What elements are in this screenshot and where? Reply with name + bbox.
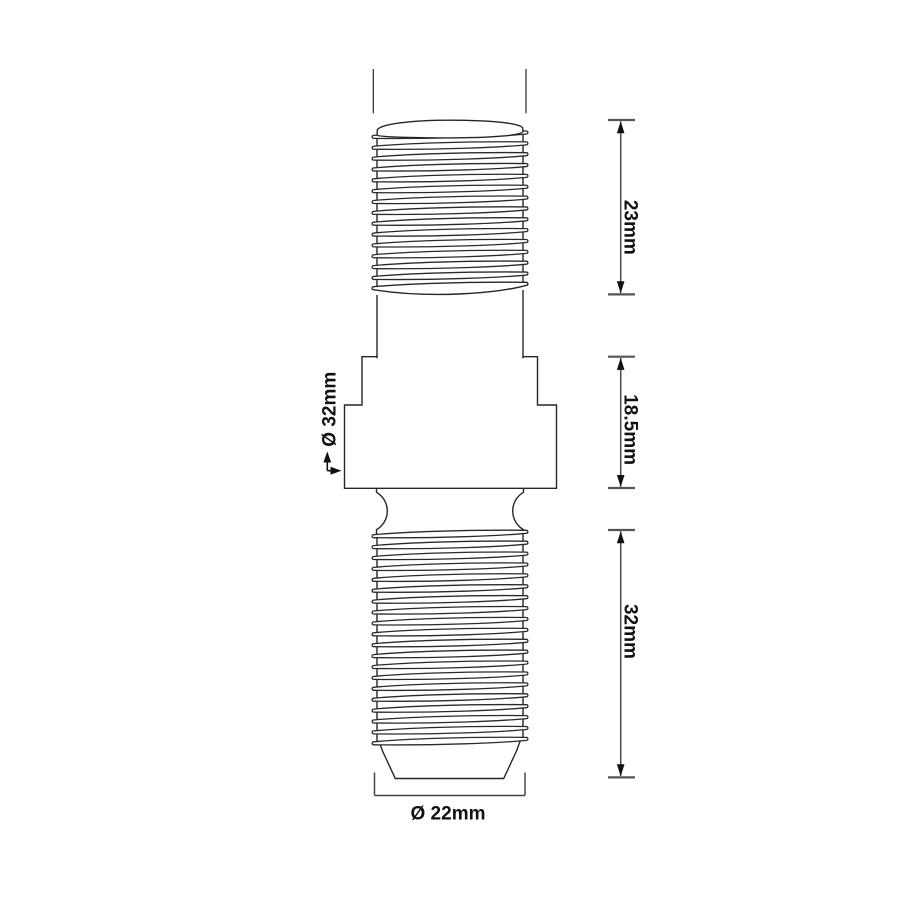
svg-text:Ø 32mm: Ø 32mm <box>319 372 340 447</box>
svg-text:32mm: 32mm <box>620 604 641 659</box>
svg-text:Ø 22mm: Ø 22mm <box>411 804 486 825</box>
svg-text:18.5mm: 18.5mm <box>620 394 641 465</box>
svg-text:23mm: 23mm <box>620 200 641 255</box>
